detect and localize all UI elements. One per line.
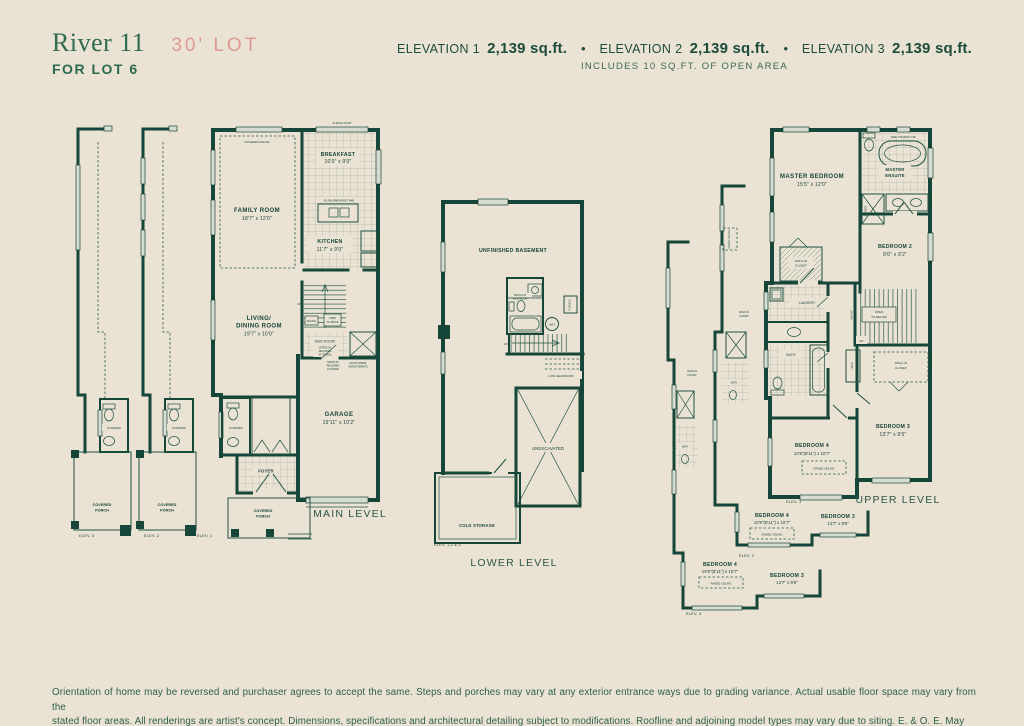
raised-ceiling-label: RAISED CEILING bbox=[814, 467, 835, 471]
upper-elev2-label: ELEV. 2 bbox=[739, 553, 754, 558]
svg-text:10'9"(8'11") x 10'7": 10'9"(8'11") x 10'7" bbox=[702, 569, 739, 574]
bedroom4-label: BEDROOM 4 bbox=[755, 513, 789, 519]
upper-level-title: UPPER LEVEL bbox=[856, 494, 941, 506]
powder-label: POWDER bbox=[172, 426, 186, 430]
upper-elev3-alt-bedrooms: BEDROOM 4 10'9"(8'11") x 10'7" RAISED CE… bbox=[681, 553, 820, 616]
svg-text:10'9"(8'11") x 10'7": 10'9"(8'11") x 10'7" bbox=[754, 520, 791, 525]
coffered-ceiling-note: COFFERED CEILING bbox=[244, 140, 269, 144]
living-dining-label: LIVING/ bbox=[247, 316, 271, 322]
svg-text:DINING ROOM: DINING ROOM bbox=[236, 324, 282, 330]
disclaimer: Orientation of home may be reversed and … bbox=[52, 686, 976, 726]
svg-text:TO BELOW: TO BELOW bbox=[871, 315, 887, 319]
upper-elev3-strip: WALK-IN CLOSET BATH bbox=[666, 242, 698, 553]
raised-ceiling-label: RAISED CEILING bbox=[711, 582, 732, 586]
svg-text:PORCH: PORCH bbox=[256, 515, 270, 519]
floorplan-canvas: POWDER COVERED PORCH ELEV. 3 bbox=[0, 0, 1024, 726]
up-label: UP bbox=[297, 302, 301, 306]
disclaimer-line2: stated floor areas. All renderings are a… bbox=[52, 715, 976, 726]
bath-label: BATH bbox=[682, 446, 688, 449]
walk-in-closet-label: WALK-IN bbox=[687, 370, 697, 373]
hwt-label: HWT bbox=[549, 323, 555, 327]
svg-text:CLOSET: CLOSET bbox=[795, 264, 807, 268]
bedroom3-label: BEDROOM 3 bbox=[876, 424, 910, 430]
svg-text:TO ABOVE: TO ABOVE bbox=[326, 321, 338, 324]
svg-text:19'11" x 10'2": 19'11" x 10'2" bbox=[323, 420, 356, 426]
shower-label: SHOWER bbox=[865, 205, 868, 216]
svg-text:PORCH: PORCH bbox=[95, 509, 109, 513]
svg-text:18'7" x 12'0": 18'7" x 12'0" bbox=[242, 216, 272, 222]
family-room-label: FAMILY ROOM bbox=[234, 208, 280, 214]
svg-text:11'7" x 9'0": 11'7" x 9'0" bbox=[317, 247, 344, 253]
svg-text:PORCH: PORCH bbox=[160, 509, 174, 513]
breakfast-label: BREAKFAST bbox=[321, 152, 356, 158]
bedroom2-label: BEDROOM 2 bbox=[878, 244, 912, 250]
powder-label: POWDER bbox=[229, 426, 243, 430]
covered-porch-label: COVERED bbox=[254, 509, 273, 513]
master-bedroom-label: MASTER BEDROOM bbox=[780, 174, 844, 180]
bedroom4-label: BEDROOM 4 bbox=[795, 443, 829, 449]
upper-elev1-label: ELEV. 1 bbox=[786, 499, 801, 504]
svg-text:CLOSET: CLOSET bbox=[895, 366, 907, 370]
svg-text:CLOSET: CLOSET bbox=[687, 374, 697, 377]
main-elev1-plan: SLIDING DOOR COFFERED CEILING FAMILY ROO… bbox=[197, 121, 381, 539]
svg-text:10'9"(8'11") x 10'7": 10'9"(8'11") x 10'7" bbox=[794, 451, 831, 456]
upper-elev2-alt-bedrooms: BEDROOM 4 10'9"(8'11") x 10'7" RAISED CE… bbox=[735, 505, 868, 558]
svg-text:9'6" x 9'2": 9'6" x 9'2" bbox=[883, 252, 907, 258]
svg-text:13'7" x 9'5": 13'7" x 9'5" bbox=[879, 432, 906, 438]
laundry-label: LAUNDRY bbox=[799, 301, 816, 305]
svg-text:19'7" x 10'0": 19'7" x 10'0" bbox=[244, 332, 274, 338]
walk-in-closet-label: WALK-IN bbox=[739, 311, 749, 314]
svg-text:GRADE PERMITS: GRADE PERMITS bbox=[348, 366, 368, 369]
low-headroom-label: LOW HEADROOM bbox=[548, 374, 574, 378]
unexcavated-label: UNEXCAVATED bbox=[532, 446, 564, 451]
powder-label: POWDER bbox=[107, 426, 121, 430]
lower-elev-label: ELEV. 1,2 & 3 bbox=[434, 542, 461, 547]
upper-level-plan: WALK-IN CLOSET BATH RAISED CEILING WALK-… bbox=[666, 127, 940, 616]
bedroom4-label: BEDROOM 4 bbox=[703, 562, 737, 568]
open-to-below-label: OPEN bbox=[875, 310, 884, 314]
open-to-above-label: OPEN bbox=[329, 317, 336, 320]
walk-in-closet-label: WALK-IN bbox=[795, 259, 807, 263]
raised-ceiling-label: RAISED CEILING bbox=[728, 229, 731, 248]
svg-text:WASHROOM: WASHROOM bbox=[513, 298, 528, 301]
svg-text:13'7" x 9'5": 13'7" x 9'5" bbox=[776, 580, 798, 585]
elev3-label: ELEV. 3 bbox=[79, 533, 94, 538]
linen-label: LINEN bbox=[851, 362, 854, 369]
main-elev2-strip: POWDER COVERED PORCH ELEV. 2 bbox=[136, 126, 196, 538]
up-label: UP bbox=[504, 342, 508, 346]
bath-label: BATH bbox=[786, 353, 796, 357]
main-level-plan: POWDER COVERED PORCH ELEV. 3 bbox=[71, 121, 387, 539]
bedroom3-label: BEDROOM 3 bbox=[821, 514, 855, 520]
raised-ceiling-label: RAISED CEILING bbox=[762, 533, 783, 537]
svg-text:10'0" x 9'0": 10'0" x 9'0" bbox=[324, 159, 351, 165]
mud-room-label: MUD ROOM bbox=[315, 340, 335, 344]
foyer-label: FOYER bbox=[258, 469, 273, 474]
walk-in-closet-label: WALK-IN bbox=[895, 361, 907, 365]
upper-elev1-plan: MASTER BEDROOM 15'5" x 12'0" WALK-IN CLO… bbox=[764, 127, 933, 504]
upper-elev3-label: ELEV. 3 bbox=[686, 611, 701, 616]
svg-text:AT GRADE: AT GRADE bbox=[327, 368, 339, 371]
main-elev3-strip: POWDER COVERED PORCH ELEV. 3 bbox=[71, 126, 131, 538]
furnace-label: FURNACE bbox=[569, 299, 572, 311]
lower-level-title: LOWER LEVEL bbox=[470, 557, 557, 569]
kitchen-label: KITCHEN bbox=[317, 239, 342, 245]
breakfast-bar-note: FLUSH BREAKFAST BAR bbox=[324, 199, 355, 203]
lower-level-plan: UNFINISHED BASEMENT ROUGH-IN WASHROOM HW… bbox=[434, 199, 583, 569]
railing-label: RAILING bbox=[307, 320, 317, 323]
svg-text:13'7" x 9'5": 13'7" x 9'5" bbox=[827, 521, 849, 526]
garage-label: GARAGE bbox=[325, 412, 354, 418]
svg-text:ENSUITE: ENSUITE bbox=[885, 173, 905, 178]
elev2-label: ELEV. 2 bbox=[144, 533, 159, 538]
dn-label: DN bbox=[860, 339, 864, 343]
covered-porch-label: COVERED bbox=[158, 503, 177, 507]
covered-porch-label: COVERED bbox=[93, 503, 112, 507]
unfinished-basement-label: UNFINISHED BASEMENT bbox=[479, 248, 547, 254]
disclaimer-line1: Orientation of home may be reversed and … bbox=[52, 686, 976, 715]
bath-label: BATH bbox=[731, 382, 737, 385]
cold-storage-label: COLD STORAGE bbox=[459, 523, 495, 528]
svg-text:CLOSET: CLOSET bbox=[739, 315, 749, 318]
upper-elev2-strip: RAISED CEILING WALK-IN CLOSET BATH bbox=[713, 186, 749, 505]
railing-label: RAILING bbox=[851, 310, 854, 320]
elev1-label: ELEV. 1 bbox=[197, 533, 212, 538]
master-ensuite-label: MASTER bbox=[886, 167, 905, 172]
free-standing-tub-label: FREE STANDING TUB bbox=[891, 136, 916, 139]
svg-text:15'5" x 12'0": 15'5" x 12'0" bbox=[797, 182, 827, 188]
sliding-door-label: SLIDING DOOR bbox=[333, 121, 352, 125]
bedroom3-label: BEDROOM 3 bbox=[770, 573, 804, 579]
main-level-title: MAIN LEVEL bbox=[313, 508, 387, 520]
floorplan-sheet: River 11 30' LOT FOR LOT 6 ELEVATION 1 2… bbox=[0, 0, 1024, 726]
